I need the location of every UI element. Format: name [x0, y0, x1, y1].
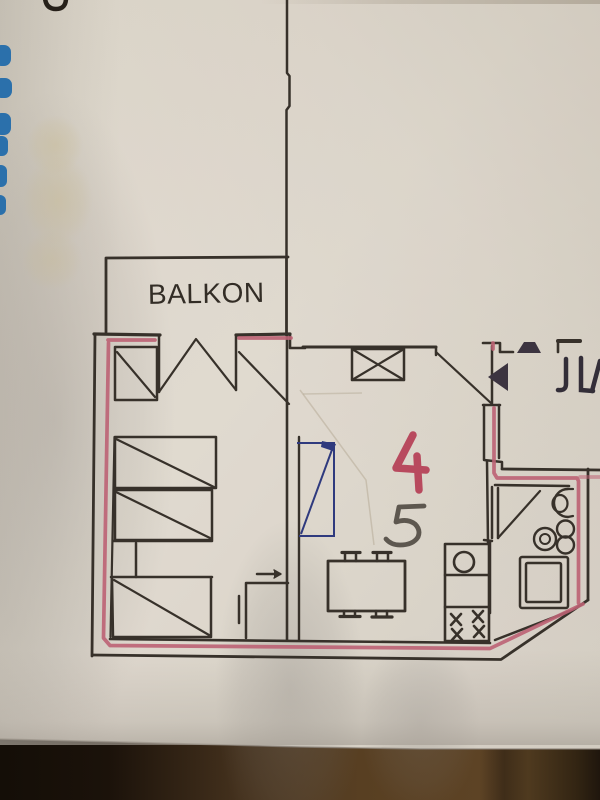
- svg-text:BALKON: BALKON: [148, 277, 265, 310]
